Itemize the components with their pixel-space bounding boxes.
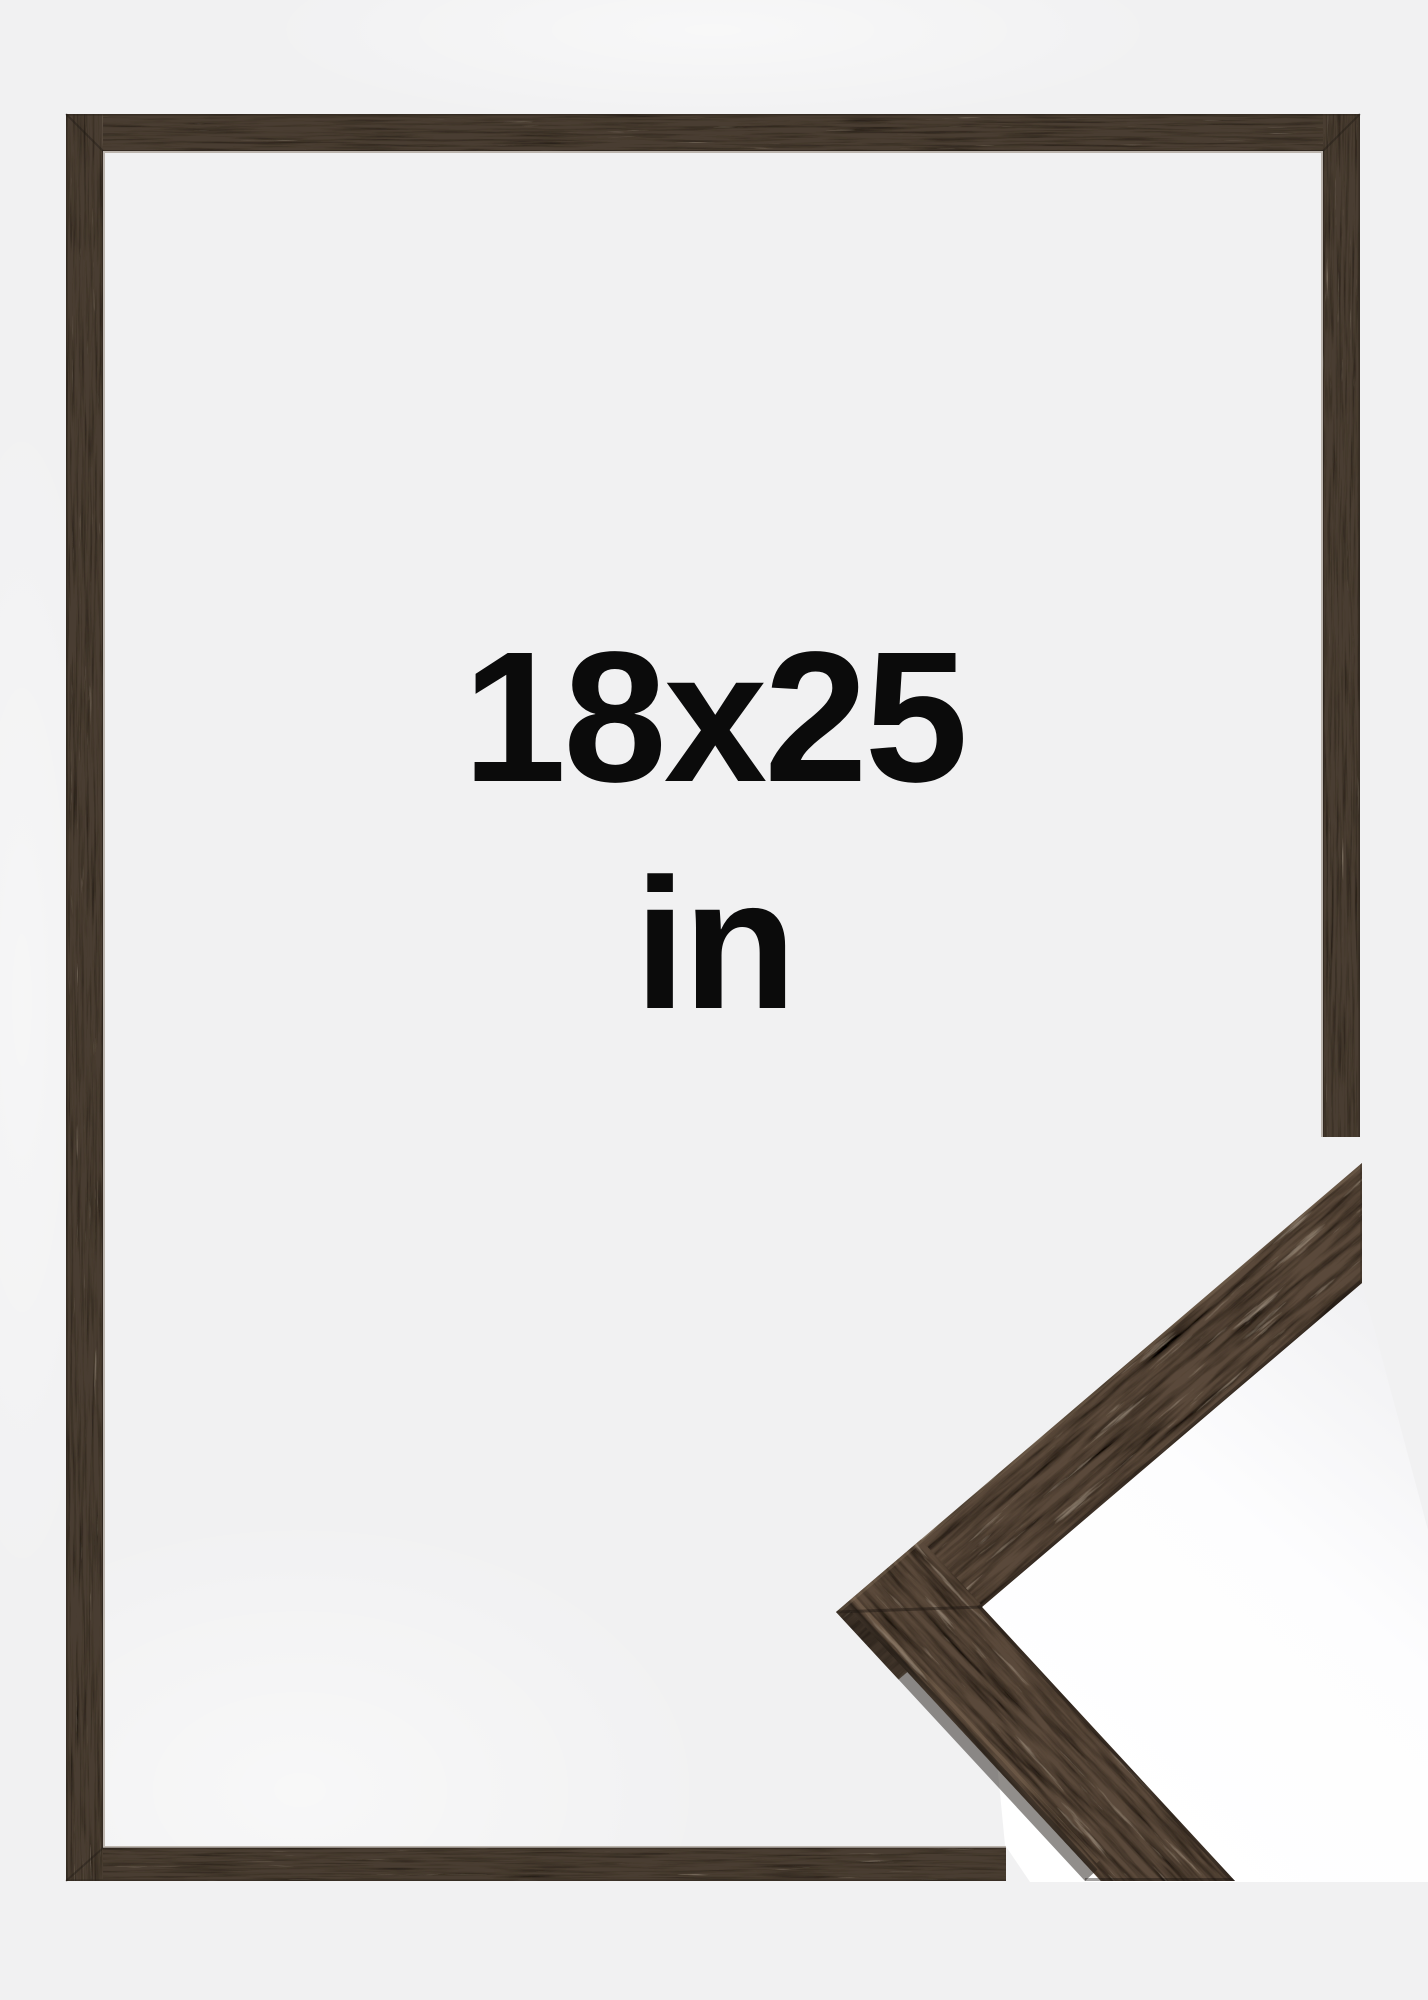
frame-photo-canvas	[0, 0, 1428, 2000]
frame-top-rail	[66, 114, 1360, 151]
frame-product-photo: 18x25 in	[0, 0, 1428, 2000]
frame-left-rail	[66, 114, 103, 1881]
